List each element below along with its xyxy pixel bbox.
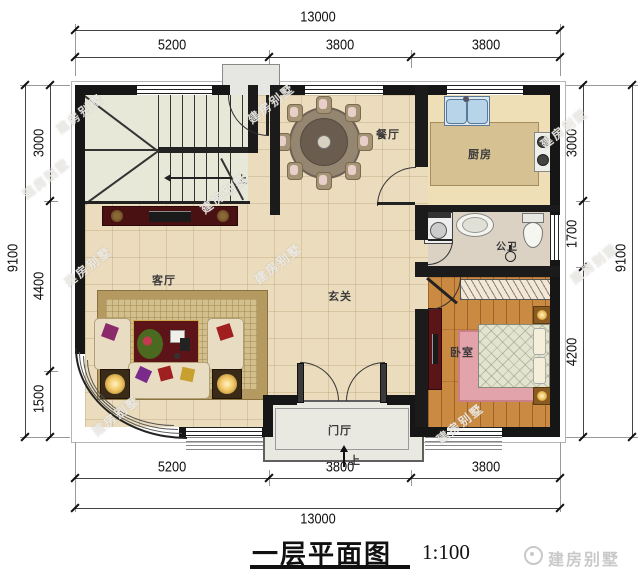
lamp-stool (212, 369, 242, 399)
porch-step-arrowhead (340, 445, 348, 452)
interior-wall-bath-west (415, 212, 428, 240)
dim-left-segment-label: 1500 (32, 385, 47, 413)
washing-machine-panel (424, 212, 451, 218)
window-sill-lines (186, 437, 263, 450)
dining-table-centerpiece (317, 135, 331, 149)
dim-line (50, 85, 51, 437)
exterior-wall (550, 260, 560, 437)
room-label-bath: 公卫 (496, 238, 518, 253)
dining-chair (316, 172, 332, 190)
porch-step-arrow (343, 450, 345, 467)
nightstand-lamp (537, 391, 547, 401)
dim-top-total-label: 13000 (300, 10, 335, 25)
extension-line (20, 85, 70, 86)
brand-logo-text: 建房别墅 (548, 546, 620, 570)
dining-chair (345, 162, 361, 180)
dim-bottom-segment-label: 3800 (472, 460, 500, 475)
stove-burner (537, 154, 549, 166)
interior-wall-bedroom-west (415, 309, 428, 427)
brand-logo-icon (524, 546, 543, 565)
nightstand (533, 387, 551, 405)
extension-line (20, 437, 70, 438)
dim-line (632, 85, 633, 437)
room-label-bedroom: 卧室 (450, 344, 474, 360)
brand-logo-icon-dot (530, 552, 534, 556)
dining-chair (345, 104, 361, 122)
exterior-wall (502, 427, 560, 437)
dim-line (75, 57, 560, 58)
bedroom-tv-cabinet (428, 308, 442, 390)
dim-left-segment-label: 4400 (32, 272, 47, 300)
watermark-text: 建房别墅 (19, 155, 74, 203)
exterior-wall-entry (263, 395, 297, 405)
chair-cushion (360, 136, 368, 146)
entry-up-label: 上 (349, 452, 361, 468)
door-leaf (297, 363, 304, 403)
exterior-wall (212, 85, 230, 95)
sofa (207, 318, 244, 370)
dining-chair (287, 162, 303, 180)
stair-winder-line (85, 149, 158, 151)
dim-line (75, 478, 560, 479)
extension-line (560, 24, 561, 76)
dim-top-segment-label: 5200 (158, 38, 186, 53)
dim-line (75, 508, 560, 509)
extension-line (566, 437, 638, 438)
title-underline (250, 565, 410, 569)
dim-right-segment-label: 1700 (565, 220, 580, 248)
room-label-living: 客厅 (152, 272, 176, 288)
chair-cushion (319, 175, 327, 185)
dim-bottom-segment-label: 5200 (158, 460, 186, 475)
tv-screen (432, 334, 438, 364)
dim-line (25, 85, 26, 437)
stair-direction-arrow (170, 177, 232, 179)
pillow (101, 323, 119, 341)
room-label-kitchen: 厨房 (468, 146, 492, 162)
dim-line (75, 30, 560, 31)
door-leaf (428, 239, 452, 241)
kitchen-faucet (463, 96, 469, 102)
floor-plan-sheet: 门厅 上 (0, 0, 640, 577)
dim-top-segment-label: 3800 (472, 38, 500, 53)
interior-wall-bath-north (415, 205, 560, 212)
wardrobe (460, 279, 552, 300)
chair-cushion (319, 99, 327, 109)
bed-pillow (533, 328, 546, 355)
window (137, 85, 212, 95)
window (186, 427, 262, 437)
chair-cushion (348, 107, 356, 117)
tv-screen (149, 211, 191, 222)
chair-cushion (290, 107, 298, 117)
nightstand (533, 306, 551, 324)
room-label-porch: 门厅 (328, 422, 352, 438)
dim-left-total-label: 9100 (6, 244, 21, 272)
bathroom-sink-basin (462, 217, 488, 233)
interior-wall-kitchen-west (415, 85, 428, 167)
chair-cushion (290, 165, 298, 175)
kitchen-sink-basin (467, 99, 488, 124)
extension-line (75, 24, 76, 76)
dining-chair (287, 104, 303, 122)
window (550, 215, 560, 260)
interior-wall-bedroom-north (415, 266, 560, 277)
plant-pot (217, 210, 229, 222)
nightstand-lamp (537, 310, 547, 320)
bed-pillow (533, 357, 546, 384)
extension-line (411, 50, 412, 68)
dining-chair (357, 133, 373, 151)
dim-left-segment-label: 3000 (32, 129, 47, 157)
door-leaf (377, 202, 415, 205)
door-leaf (380, 363, 387, 403)
window (447, 85, 523, 95)
pillow (216, 323, 234, 341)
dining-chair (316, 96, 332, 114)
dim-bottom-total-label: 13000 (300, 512, 335, 527)
washing-machine-drum (430, 222, 447, 239)
floor-lamp (217, 374, 237, 394)
room-label-dining: 餐厅 (376, 126, 400, 142)
kitchen-sink-basin (446, 99, 467, 124)
exterior-wall (550, 85, 560, 215)
scale-label: 1:100 (422, 540, 470, 565)
stair-direction-arrowhead (164, 174, 171, 182)
room-label-foyer: 玄关 (328, 288, 352, 304)
chair-cushion (348, 165, 356, 175)
dim-right-segment-label: 4200 (565, 338, 580, 366)
plant-pot (111, 210, 123, 222)
dim-top-segment-label: 3800 (326, 38, 354, 53)
extension-line (566, 85, 638, 86)
window (305, 85, 383, 95)
